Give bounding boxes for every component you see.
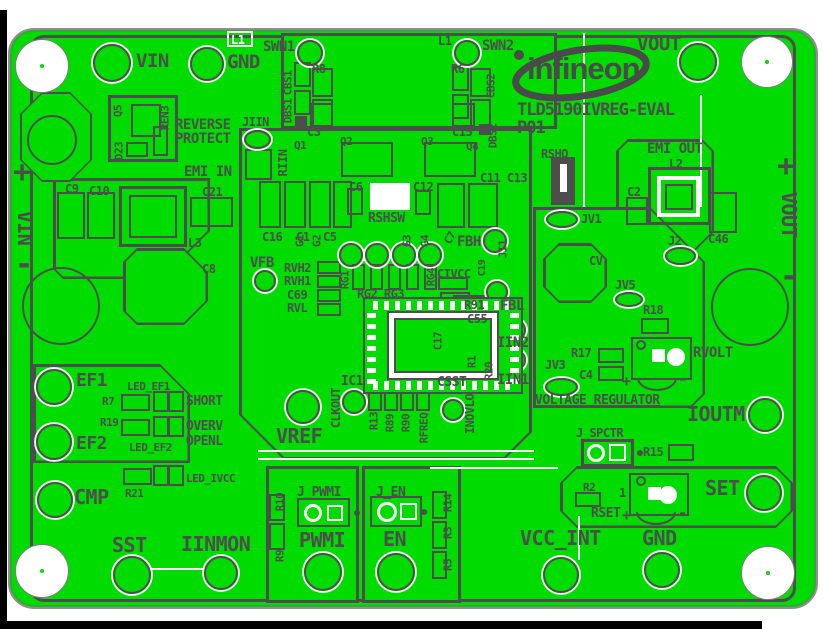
label-r15: R15 [643, 446, 663, 458]
component-outline-21 [437, 183, 465, 228]
label-dbs2: DBS2 [488, 124, 499, 149]
label-csst: CSST [437, 376, 466, 389]
jumper-ring-spctr [587, 444, 605, 462]
label-: + [13, 158, 31, 188]
label-q2: Q2 [340, 136, 352, 147]
component-outline-18 [284, 181, 306, 228]
logo-dot [514, 50, 524, 60]
component-outline-75 [641, 318, 669, 334]
label-j-spctr: J_SPCTR [576, 427, 623, 439]
tp-vfb [254, 270, 276, 292]
mount-hole-br-center [766, 571, 770, 575]
component-outline-65 [327, 505, 343, 521]
label-overv: OVERV [186, 420, 223, 433]
label-c11-c13: C11 C13 [480, 172, 527, 184]
label-ef2: EF2 [76, 435, 107, 453]
label-c5: C5 [323, 231, 336, 243]
label-r17: R17 [571, 347, 591, 359]
label-j-pwmi: J_PWMI [297, 486, 341, 499]
label-ji1: JI1 [498, 240, 509, 258]
tp-ef2 [36, 424, 72, 460]
silkscreen-overlay: infineon TLD5190IVREG-EVAL P01 VINGNDSWN… [0, 0, 823, 629]
label-vin: VIN [136, 52, 169, 71]
label-cv: CV [589, 255, 602, 267]
label-fbh: FBH [457, 235, 481, 249]
label-l2: L2 [669, 158, 682, 170]
component-outline-25 [57, 192, 85, 239]
label-rvl: RVL [287, 302, 307, 314]
component-outline-72 [575, 492, 601, 507]
label-rg1: RG1 [340, 271, 351, 289]
label--2: - [15, 250, 33, 280]
label-l1: L1 [231, 34, 244, 46]
label-r91: R91 [464, 299, 484, 311]
component-outline-27 [129, 195, 177, 238]
label-cbs2: CBS2 [486, 74, 497, 99]
label-c8: C8 [202, 263, 215, 275]
out-cap-right [711, 268, 789, 346]
cv-outline [543, 243, 607, 303]
label-reverse: REVERSE [175, 118, 231, 132]
label-iin2: IIN2 [497, 336, 529, 350]
label-g2: G2 [312, 235, 323, 247]
label-inovlo: INOVLO [464, 394, 476, 434]
label-r18: R18 [643, 304, 663, 316]
label-r1: R1 [467, 356, 478, 368]
mount-hole-tl [15, 39, 69, 93]
label-r3: R3 [443, 527, 454, 539]
tp-g1 [339, 243, 363, 267]
c8-outline [123, 248, 208, 325]
label-rvh2: RVH2 [284, 262, 311, 274]
pot-ring-rvolt [636, 340, 646, 350]
label--3: + [777, 152, 795, 182]
component-outline-29 [317, 261, 341, 274]
label-ic1: IC1 [341, 375, 363, 388]
label-r19: R19 [100, 417, 118, 428]
tp-gnd-top [190, 47, 224, 81]
label-rg2-rg3: RG2 RG3 [357, 288, 404, 300]
trace-line-4 [258, 458, 534, 460]
component-outline-70 [609, 444, 626, 461]
label-emi-out: EMI OUT [647, 142, 703, 156]
infineon-logo: infineon [503, 40, 659, 106]
jumper-ring-pwmi [304, 504, 322, 522]
label-d23: D23 [114, 142, 125, 160]
label-vout: VOUT [637, 35, 681, 54]
trace-line-3 [258, 450, 534, 452]
label-jv3: JV3 [545, 359, 565, 371]
tp-ef1 [36, 369, 72, 405]
label-c10: C10 [89, 185, 109, 197]
label-rvolt: RVOLT [693, 346, 733, 360]
pot-ring-rset [636, 476, 646, 486]
label-ren3: REN3 [160, 106, 171, 131]
label-dbs1: DBS1 [283, 99, 294, 124]
label-l1-2: L1 [438, 35, 451, 47]
tp-ioutm [748, 398, 782, 432]
label-c4: C4 [579, 369, 592, 381]
label-j2: J2 [668, 235, 681, 247]
tp-inovlo [442, 399, 464, 421]
component-outline-2 [153, 126, 168, 156]
rshsw-pad [370, 183, 410, 210]
label-r14: R14 [443, 494, 454, 512]
trace-line-6 [150, 568, 206, 570]
label-rset: RSET [591, 507, 620, 520]
label-riin: RIIN [277, 150, 289, 177]
bulk-cap-left [22, 267, 100, 345]
component-outline-74 [652, 349, 665, 362]
label-c46: C46 [708, 233, 728, 245]
label-r10: R10 [275, 493, 286, 511]
component-outline-60 [123, 468, 152, 485]
label-r13: R13 [369, 412, 380, 430]
ic-pins-left [367, 307, 376, 384]
label-swn2: SWN2 [482, 39, 514, 53]
label-vref: VREF [276, 426, 322, 446]
label-c12: C12 [413, 181, 433, 193]
label-cbs1: CBS1 [283, 71, 294, 96]
component-outline-6 [294, 90, 311, 115]
component-outline-28 [190, 197, 233, 227]
label-g4: G4 [420, 235, 431, 247]
tp-vref [286, 390, 320, 424]
tp-vout [679, 43, 717, 81]
pcb-viewer-canvas: infineon TLD5190IVREG-EVAL P01 VINGNDSWN… [0, 0, 823, 629]
label-civcc: CIVCC [437, 268, 471, 280]
label-c6: C6 [349, 181, 362, 193]
tp-gnd-bottom [644, 552, 680, 588]
ic-pins-top [373, 301, 513, 310]
pot-wiper-rset [659, 486, 677, 504]
label-c2: C2 [627, 186, 640, 198]
label-short: SHORT [186, 395, 223, 408]
label--4: - [780, 262, 798, 292]
label-q4: Q4 [466, 141, 478, 152]
label-rvh1: RVH1 [284, 275, 311, 287]
component-outline-30 [317, 275, 341, 288]
component-outline-16 [452, 103, 475, 127]
label-vfb: VFB [250, 256, 274, 270]
mount-hole-tr-center [765, 60, 769, 64]
component-outline-77 [598, 366, 624, 381]
label-rsho: RSHO [541, 148, 568, 160]
tp-g2 [365, 243, 389, 267]
label-openl: OPENL [186, 435, 223, 448]
label-rshsw: RSHSW [368, 212, 405, 225]
mount-hole-br [741, 546, 795, 600]
label-r2: R2 [583, 482, 595, 493]
label-r89: R89 [385, 414, 396, 432]
label-rg4: RG4 [426, 268, 437, 286]
label-r20: R20 [484, 362, 495, 380]
mount-hole-tr [741, 36, 793, 88]
tp-pwmi [304, 553, 342, 591]
label-1: 1 [619, 487, 626, 499]
jv5-pad [615, 292, 643, 307]
label-set: SET [705, 478, 740, 498]
label-jv1: JV1 [581, 213, 601, 225]
board-revision: P01 [517, 120, 545, 137]
component-outline-56 [167, 392, 170, 411]
label-g3: G3 [402, 235, 413, 247]
component-outline-80 [665, 184, 693, 210]
label-swn1: SWN1 [263, 40, 295, 54]
label-r7: R7 [102, 396, 114, 407]
label-r90: R90 [401, 414, 412, 432]
label-q5: Q5 [113, 105, 124, 117]
label-c16: C16 [262, 231, 282, 243]
label-clkout: CLKOUT [330, 388, 342, 428]
component-outline-3 [126, 142, 148, 157]
label-led-ef1: LED_EF1 [127, 381, 170, 392]
label-iin1: IIN1 [497, 373, 529, 387]
label-g1: G1 [295, 235, 306, 247]
component-outline-36 [406, 264, 419, 290]
label-protect: PROTECT [175, 132, 231, 146]
label-c17: C17 [433, 332, 444, 350]
component-outline-66 [400, 503, 417, 520]
jv1-pad [546, 211, 578, 228]
label-sst: SST [112, 535, 147, 555]
pot-wiper-rvolt [667, 348, 685, 366]
component-outline-31 [317, 289, 341, 302]
brand-name: infineon [527, 53, 640, 84]
label-c3: C3 [307, 126, 320, 138]
label-r8: R8 [312, 63, 325, 75]
tp-en [377, 553, 415, 591]
label-c55: C55 [467, 313, 487, 325]
label-led-ivcc: LED_IVCC [186, 473, 235, 484]
label-q3: Q3 [421, 136, 433, 147]
label-voltage-regulator: VOLTAGE REGULATOR [535, 394, 660, 407]
dot-en [421, 509, 427, 515]
component-outline-81 [626, 197, 648, 225]
component-outline-76 [598, 348, 624, 363]
component-outline-54 [121, 394, 150, 411]
mount-hole-tl-center [40, 64, 44, 68]
label-l3: L3 [188, 237, 201, 249]
label-pwmi: PWMI [299, 530, 345, 550]
label-r9: R9 [275, 550, 286, 562]
component-outline-9 [295, 116, 307, 127]
tp-iinmon [204, 556, 238, 590]
label-jv5: JV5 [615, 279, 635, 291]
label-emi-in: EMI IN [184, 165, 232, 179]
label-jiin: JIIN [242, 116, 269, 128]
label-en: EN [383, 529, 406, 549]
trace-line-5 [430, 467, 558, 469]
jumper-ring-en [377, 502, 397, 522]
component-outline-4 [245, 149, 272, 180]
label-gnd: GND [227, 53, 260, 72]
label--8: - [678, 506, 687, 521]
c8-outline-fill [126, 251, 206, 323]
component-outline-62 [167, 466, 170, 485]
component-outline-15 [310, 103, 333, 127]
label-fbl: FBL [500, 299, 524, 313]
mount-hole-bl-center [40, 569, 44, 573]
board-title: TLD5190IVREG-EVAL [517, 102, 674, 119]
component-outline-71 [668, 444, 694, 461]
tp-vcc-int [543, 557, 579, 593]
j2-pad [665, 247, 696, 265]
component-outline-19 [309, 181, 331, 228]
label--6: - [678, 372, 687, 387]
label-ioutm: IOUTM [687, 404, 745, 424]
label-rfreq: RFREQ [419, 413, 430, 444]
label-r6: R6 [451, 63, 464, 75]
jiin-pad [244, 130, 271, 149]
label--5: + [622, 374, 631, 389]
mount-hole-bl [15, 544, 69, 598]
label-c15: C15 [452, 126, 472, 138]
label-r21: R21 [125, 488, 143, 499]
component-outline-64 [269, 523, 285, 550]
label--7: + [622, 508, 631, 523]
component-outline-32 [317, 303, 341, 316]
component-outline-82 [709, 192, 737, 233]
component-outline-57 [121, 419, 150, 436]
tp-cmp [37, 482, 73, 518]
label-gnd-2: GND [642, 528, 677, 548]
tp-set [746, 475, 782, 511]
component-outline-17 [259, 181, 281, 228]
dot-pwmi [354, 510, 360, 516]
label-c21: C21 [202, 186, 222, 198]
label-led-ef2: LED_EF2 [129, 442, 172, 453]
label-r5: R5 [443, 559, 454, 571]
label-c69: C69 [287, 289, 307, 301]
component-outline-22 [468, 183, 498, 228]
label-cmp: CMP [74, 487, 109, 507]
component-outline-26 [87, 192, 115, 239]
tp-vin [93, 44, 131, 82]
label-q1: Q1 [294, 140, 306, 151]
component-outline-59 [167, 417, 170, 436]
label-vout-2: VOUT [779, 192, 799, 238]
vin-hole [27, 115, 77, 165]
label-c9: C9 [65, 183, 78, 195]
label-vcc-int: VCC_INT [520, 528, 601, 548]
label-c19: C19 [478, 260, 488, 277]
label-ef1: EF1 [76, 372, 107, 390]
label-j-en: J_EN [376, 486, 405, 499]
label-vin-2: VIN [15, 211, 35, 246]
label-iinmon: IINMON [181, 534, 250, 554]
component-outline-78 [560, 164, 567, 192]
tp-sst [113, 556, 151, 594]
